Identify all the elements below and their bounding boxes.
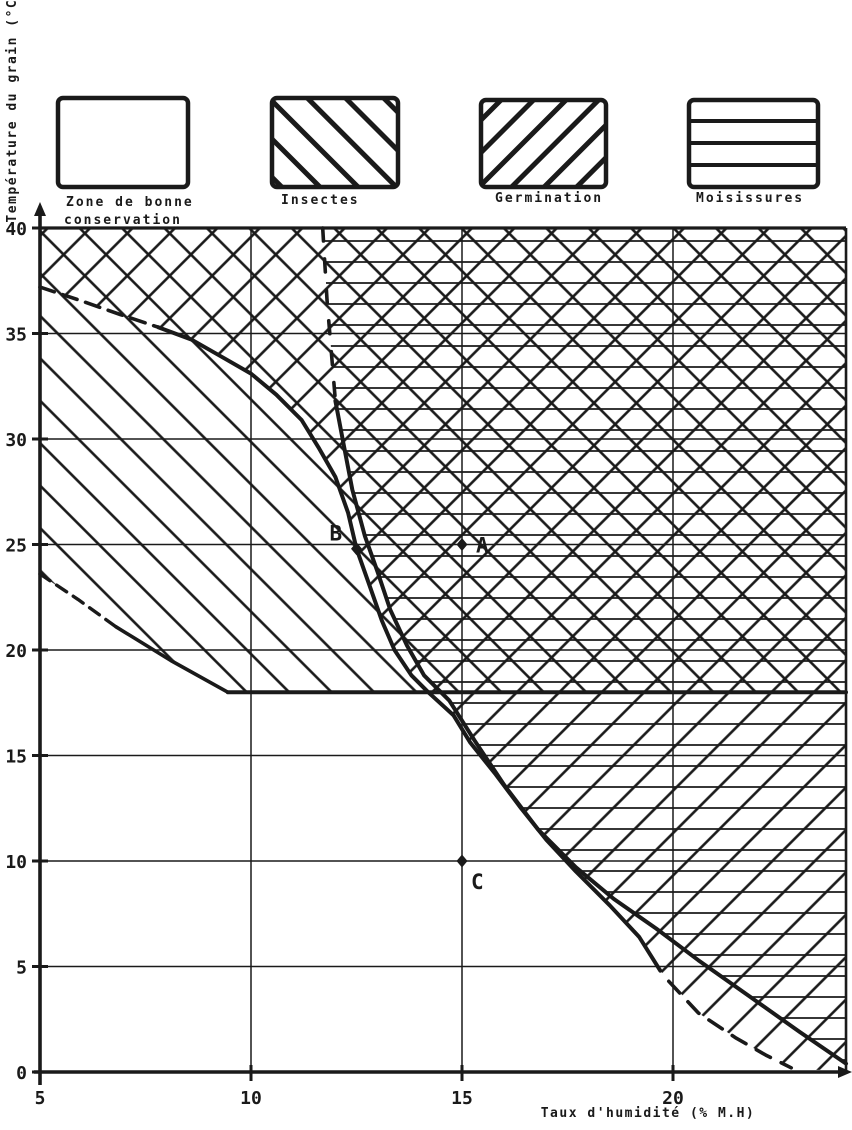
- point-label-A: A: [476, 534, 489, 558]
- y-axis-title: Température du grain (°C): [5, 0, 20, 223]
- legend-label-zone-line2: conservation: [64, 213, 182, 228]
- y-tick-label-5: 5: [16, 958, 27, 979]
- point-label-B: B: [330, 522, 343, 546]
- x-tick-label-5: 5: [35, 1088, 46, 1109]
- y-tick-label-30: 30: [5, 430, 27, 451]
- legend: Zone de bonne conservation Insectes Germ…: [58, 98, 818, 228]
- legend-label-moisissures: Moisissures: [696, 191, 804, 206]
- legend-item-insectes: Insectes: [272, 98, 398, 208]
- legend-item-moisissures: Moisissures: [689, 100, 818, 206]
- legend-label-zone-line1: Zone de bonne: [66, 195, 194, 210]
- legend-item-germination: Germination: [481, 100, 606, 206]
- y-tick-label-15: 15: [5, 747, 27, 768]
- legend-item-zone-bonne-conservation: Zone de bonne conservation: [58, 98, 194, 228]
- y-tick-label-10: 10: [5, 852, 27, 873]
- y-tick-label-25: 25: [5, 536, 27, 557]
- y-tick-label-40: 40: [5, 219, 27, 240]
- legend-swatch-zone-bonne-conservation: [58, 98, 188, 187]
- legend-swatch-germination: [481, 100, 606, 187]
- legend-label-insectes: Insectes: [281, 193, 360, 208]
- x-tick-label-15: 15: [451, 1088, 473, 1109]
- plot-area: 05101520253035405101520ABC: [5, 202, 852, 1109]
- legend-label-germination: Germination: [495, 191, 603, 206]
- y-axis-arrow-icon: [34, 202, 46, 216]
- y-tick-label-0: 0: [16, 1063, 27, 1084]
- x-axis-title: Taux d'humidité (% M.H): [541, 1106, 756, 1121]
- x-tick-label-10: 10: [240, 1088, 262, 1109]
- point-marker-C: [457, 855, 468, 868]
- grain-conservation-chart: Température du grain (°C) Taux d'humidit…: [0, 0, 852, 1130]
- x-tick-label-20: 20: [662, 1088, 684, 1109]
- legend-swatch-moisissures: [689, 100, 818, 187]
- y-tick-label-20: 20: [5, 641, 27, 662]
- y-tick-label-35: 35: [5, 325, 27, 346]
- legend-swatch-insectes: [272, 98, 398, 187]
- scanned-chart-page: Température du grain (°C) Taux d'humidit…: [0, 0, 852, 1130]
- point-label-C: C: [471, 870, 484, 894]
